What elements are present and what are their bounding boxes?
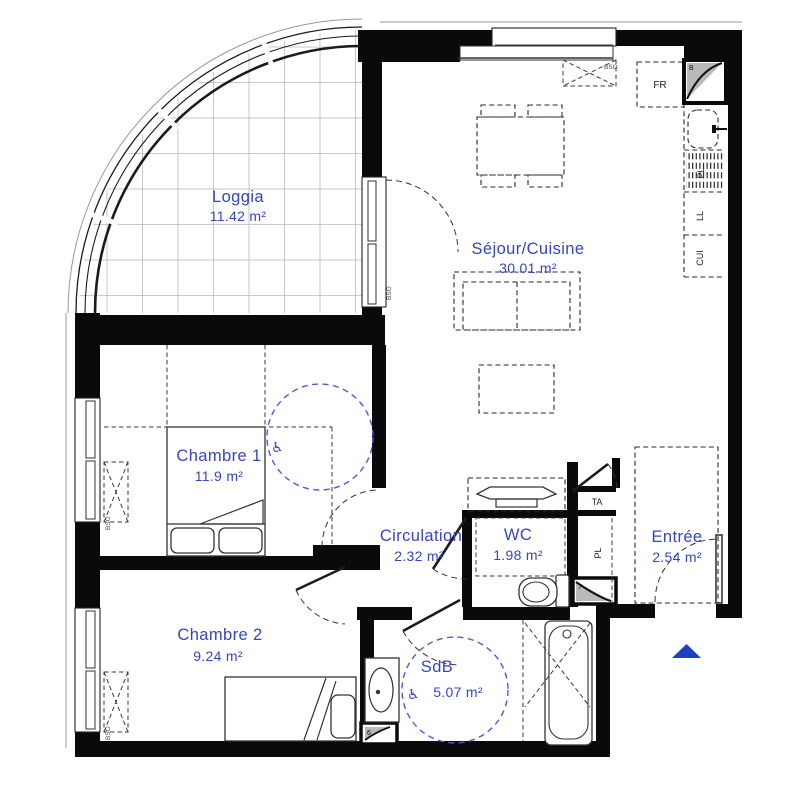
wall-entree-bottom-right bbox=[716, 604, 742, 618]
shaft-7-label: 7 bbox=[578, 584, 582, 591]
wall-wc-left bbox=[462, 518, 472, 607]
entrance-marker-triangle bbox=[672, 644, 701, 658]
shaft-b: B bbox=[684, 60, 726, 103]
chambre1-door-swing bbox=[322, 490, 379, 547]
wall-sdb-top-left bbox=[357, 607, 412, 620]
panel-ta-label: TA bbox=[592, 497, 603, 507]
windows bbox=[75, 28, 616, 732]
pillow bbox=[219, 528, 262, 553]
wc-door-swing bbox=[433, 569, 466, 579]
circulation-area: 2.32 m² bbox=[394, 548, 444, 564]
wall-ch1-ch2-thick bbox=[313, 545, 380, 570]
chambre2-name: Chambre 2 bbox=[177, 626, 262, 644]
sejour-window bbox=[492, 28, 616, 46]
wall-bottom bbox=[75, 741, 610, 757]
wc-area: 1.98 m² bbox=[493, 547, 543, 563]
dining-table bbox=[477, 117, 564, 175]
balcony-railing-arcs bbox=[68, 19, 362, 313]
sofa-seat bbox=[463, 282, 570, 330]
bso-label-loggia: BSO bbox=[386, 286, 393, 300]
entree-name: Entrée bbox=[651, 528, 702, 546]
wall-right bbox=[728, 30, 742, 618]
sejour-area: 30.01 m² bbox=[499, 260, 557, 276]
sejour-name: Séjour/Cuisine bbox=[472, 240, 585, 258]
wall-ta-bottom bbox=[578, 510, 616, 516]
sdb-area: 5.07 m² bbox=[433, 684, 483, 700]
chair bbox=[481, 105, 515, 117]
wall-left-2 bbox=[75, 522, 100, 608]
entry-door-leaf bbox=[716, 535, 722, 603]
washing-machine-label: LL bbox=[695, 211, 705, 221]
wall-sdb-top-right bbox=[463, 607, 570, 620]
toilet-tank bbox=[556, 575, 569, 607]
closet-label: PL bbox=[593, 547, 603, 558]
chambre1-name: Chambre 1 bbox=[176, 447, 261, 465]
kitchen-unit-label: PL bbox=[696, 167, 706, 178]
chambre2-door-leaf bbox=[296, 567, 345, 590]
entree-clearance bbox=[635, 447, 718, 603]
wc-name: WC bbox=[504, 526, 532, 544]
wall-ta-top bbox=[578, 486, 616, 492]
sejour-furniture bbox=[454, 105, 580, 511]
chambre2-door-swing bbox=[296, 590, 345, 624]
wall-loggia-bottom bbox=[75, 315, 385, 345]
cooker-label: CUI bbox=[695, 250, 705, 266]
shaft-6-label: 6 bbox=[367, 730, 371, 737]
chambre2-blind-box: BSO bbox=[104, 672, 128, 740]
walls bbox=[75, 30, 742, 757]
chambre1-accessible-icon: ♿ bbox=[271, 439, 284, 455]
shaft-b-label: B bbox=[689, 65, 694, 72]
washbasin-shelf bbox=[468, 478, 565, 511]
bso-label-top: BSO bbox=[604, 64, 618, 71]
entree-area: 2.54 m² bbox=[652, 549, 702, 565]
chair bbox=[528, 175, 562, 187]
sdb-fixtures: ♿ bbox=[365, 620, 592, 745]
sdb-name: SdB bbox=[421, 658, 453, 676]
circulation-name: Circulation bbox=[380, 527, 462, 545]
loggia-tile-grid bbox=[70, 20, 362, 313]
chambre1-area: 11.9 m² bbox=[195, 468, 244, 484]
wall-left-1 bbox=[75, 313, 100, 398]
pillow bbox=[331, 695, 355, 738]
floor-plan: BSO BSO BSO BSO bbox=[0, 0, 808, 800]
chambre1-turning-circle bbox=[267, 384, 373, 490]
wall-top-left bbox=[358, 30, 492, 46]
loggia-door-swing bbox=[386, 180, 458, 252]
chambre2-area: 9.24 m² bbox=[193, 648, 243, 664]
floor-plan-svg: BSO BSO BSO BSO bbox=[0, 0, 808, 800]
sejour-blind-box: BSO bbox=[563, 60, 618, 86]
shaft-7: 7 bbox=[573, 578, 616, 604]
wall-sdb-right bbox=[596, 604, 610, 757]
fridge-label: FR bbox=[653, 80, 666, 91]
bso-label-ch1: BSO bbox=[105, 516, 112, 530]
loggia-area: 11.42 m² bbox=[210, 208, 267, 224]
pillow bbox=[171, 528, 214, 553]
coffee-table bbox=[479, 365, 554, 413]
chair bbox=[481, 175, 515, 187]
chambre1-blind-box: BSO bbox=[104, 462, 128, 530]
sdb-accessible-icon: ♿ bbox=[407, 686, 420, 702]
wall-ch1-right bbox=[372, 345, 386, 488]
loggia-name: Loggia bbox=[212, 188, 264, 206]
chambre2-furniture bbox=[225, 677, 356, 741]
chair bbox=[528, 105, 562, 117]
wall-loggia-right-upper bbox=[362, 46, 382, 177]
bathtub bbox=[545, 621, 592, 745]
wall-top-right bbox=[616, 30, 742, 46]
shaft-6: 6 bbox=[361, 723, 397, 744]
bso-label-ch2: BSO bbox=[105, 726, 112, 740]
faucet-base bbox=[712, 125, 716, 133]
